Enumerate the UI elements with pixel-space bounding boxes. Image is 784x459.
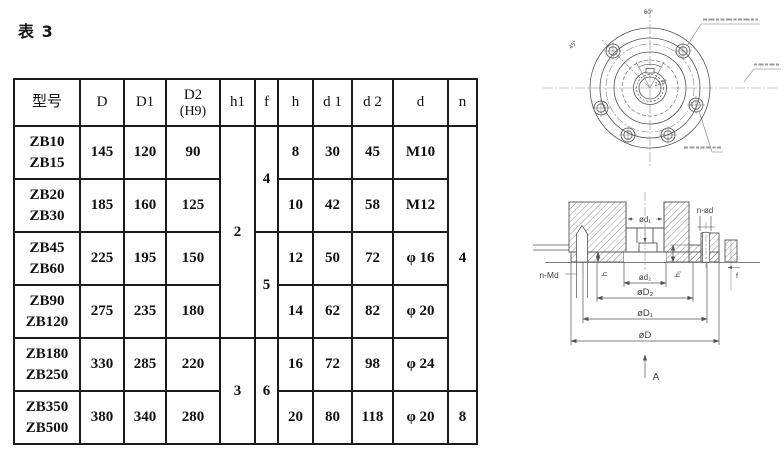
cell-model: ZB45ZB60	[14, 232, 80, 285]
bolt-holes	[592, 42, 705, 144]
header-row: 型号 D D1 D2(H9) h1 f h d 1 d 2 d n	[14, 79, 477, 126]
col-header-d1: d 1	[313, 79, 352, 126]
cell-D1: 340	[124, 391, 166, 444]
cell-h: 8	[278, 126, 313, 179]
cell-n: 8	[448, 391, 477, 444]
cell-D: 225	[80, 232, 124, 285]
cell-d1: 80	[313, 391, 352, 444]
label-D2: øD₂	[637, 287, 654, 298]
cell-model: ZB350ZB500	[14, 391, 80, 444]
cell-f-merged: 4	[255, 126, 278, 232]
col-header-h: h	[278, 79, 313, 126]
cell-h: 14	[278, 285, 313, 338]
cell-d1: 30	[313, 126, 352, 179]
cell-d2: 72	[352, 232, 393, 285]
cell-d2: 58	[352, 179, 393, 232]
cell-h: 12	[278, 232, 313, 285]
cell-f-merged: 6	[255, 338, 278, 444]
cell-f-merged: 5	[255, 232, 278, 338]
table-row: ZB180ZB250 330 285 220 3 6 16 72 98 φ 24	[14, 338, 477, 391]
table-caption: 表 3	[18, 18, 54, 42]
keyway-notch	[646, 69, 654, 74]
flange-front-view-drawing: 60° 45° 22.5°	[538, 2, 784, 174]
cell-D: 185	[80, 179, 124, 232]
n-md-tapped-hole	[577, 226, 588, 263]
cell-model: ZB180ZB250	[14, 338, 80, 391]
cell-D2: 180	[166, 285, 220, 338]
cell-D1: 120	[124, 126, 166, 179]
cell-d2: 118	[352, 391, 393, 444]
leader-line-top-note	[687, 24, 760, 46]
col-header-f: f	[255, 79, 278, 126]
col-header-d: d	[393, 79, 448, 126]
col-header-D2: D2(H9)	[166, 79, 220, 126]
cell-d: M12	[393, 179, 448, 232]
col-header-D: D	[80, 79, 124, 126]
cell-D1: 285	[124, 338, 166, 391]
cell-d: φ 20	[393, 285, 448, 338]
bolt-hole	[687, 96, 705, 114]
cell-h1-merged: 3	[220, 338, 255, 444]
cell-n-merged: 4	[448, 126, 477, 391]
col-header-D2-tolerance: (H9)	[167, 105, 219, 120]
cell-d2: 45	[352, 126, 393, 179]
cell-D2: 150	[166, 232, 220, 285]
col-header-model: 型号	[14, 79, 80, 126]
label-h1: h₁	[673, 270, 682, 277]
angle-label-top: 60°	[644, 10, 654, 16]
diagonal-centerline	[601, 39, 650, 88]
col-header-n: n	[448, 79, 477, 126]
cell-D2: 280	[166, 391, 220, 444]
cell-d2: 82	[352, 285, 393, 338]
label-D: øD	[639, 330, 652, 341]
table-row: ZB10ZB15 145 120 90 2 4 8 30 45 M10 4	[14, 126, 477, 179]
cell-D1: 235	[124, 285, 166, 338]
flange-section-view-drawing: ød₁ n-ød n-Md h h₁ ød₂ øD₂ øD₁ øD f A	[525, 190, 784, 405]
bolt-hole	[659, 126, 677, 144]
col-header-h1: h1	[220, 79, 255, 126]
cell-D: 275	[80, 285, 124, 338]
label-n-od: n-ød	[697, 206, 713, 215]
angle-label-left: 45°	[568, 40, 579, 51]
cell-model: ZB20ZB30	[14, 179, 80, 232]
cell-d1: 42	[313, 179, 352, 232]
cell-d: φ 24	[393, 338, 448, 391]
cell-h1-merged: 2	[220, 126, 255, 338]
cell-d1: 62	[313, 285, 352, 338]
cell-d1: 50	[313, 232, 352, 285]
cell-d1: 72	[313, 338, 352, 391]
label-h: h	[600, 272, 609, 276]
cell-h: 10	[278, 179, 313, 232]
cell-model: ZB90ZB120	[14, 285, 80, 338]
cell-D1: 160	[124, 179, 166, 232]
keyway-profile	[639, 243, 657, 252]
cell-d: M10	[393, 126, 448, 179]
cell-D2: 90	[166, 126, 220, 179]
cell-D: 330	[80, 338, 124, 391]
cell-d2: 98	[352, 338, 393, 391]
cell-h: 20	[278, 391, 313, 444]
dimension-table: 型号 D D1 D2(H9) h1 f h d 1 d 2 d n ZB10ZB…	[13, 78, 478, 445]
cell-h: 16	[278, 338, 313, 391]
cell-D2: 220	[166, 338, 220, 391]
col-header-D1: D1	[124, 79, 166, 126]
label-n-md: n-Md	[539, 270, 559, 280]
label-D1: øD₁	[637, 308, 653, 319]
leader-line-right-note	[744, 69, 781, 82]
label-datum-a: A	[653, 372, 660, 383]
cell-d: φ 16	[393, 232, 448, 285]
label-f: f	[736, 273, 738, 280]
col-header-d2: d 2	[352, 79, 393, 126]
cell-D: 145	[80, 126, 124, 179]
cell-D1: 195	[124, 232, 166, 285]
label-d2: ød₂	[639, 273, 651, 282]
cell-D2: 125	[166, 179, 220, 232]
label-d1: ød₁	[639, 215, 651, 224]
cell-D: 380	[80, 391, 124, 444]
scanned-page: { "page": { "title": "表 3" }, "table": {…	[0, 0, 784, 459]
cell-model: ZB10ZB15	[14, 126, 80, 179]
cell-d: φ 20	[393, 391, 448, 444]
